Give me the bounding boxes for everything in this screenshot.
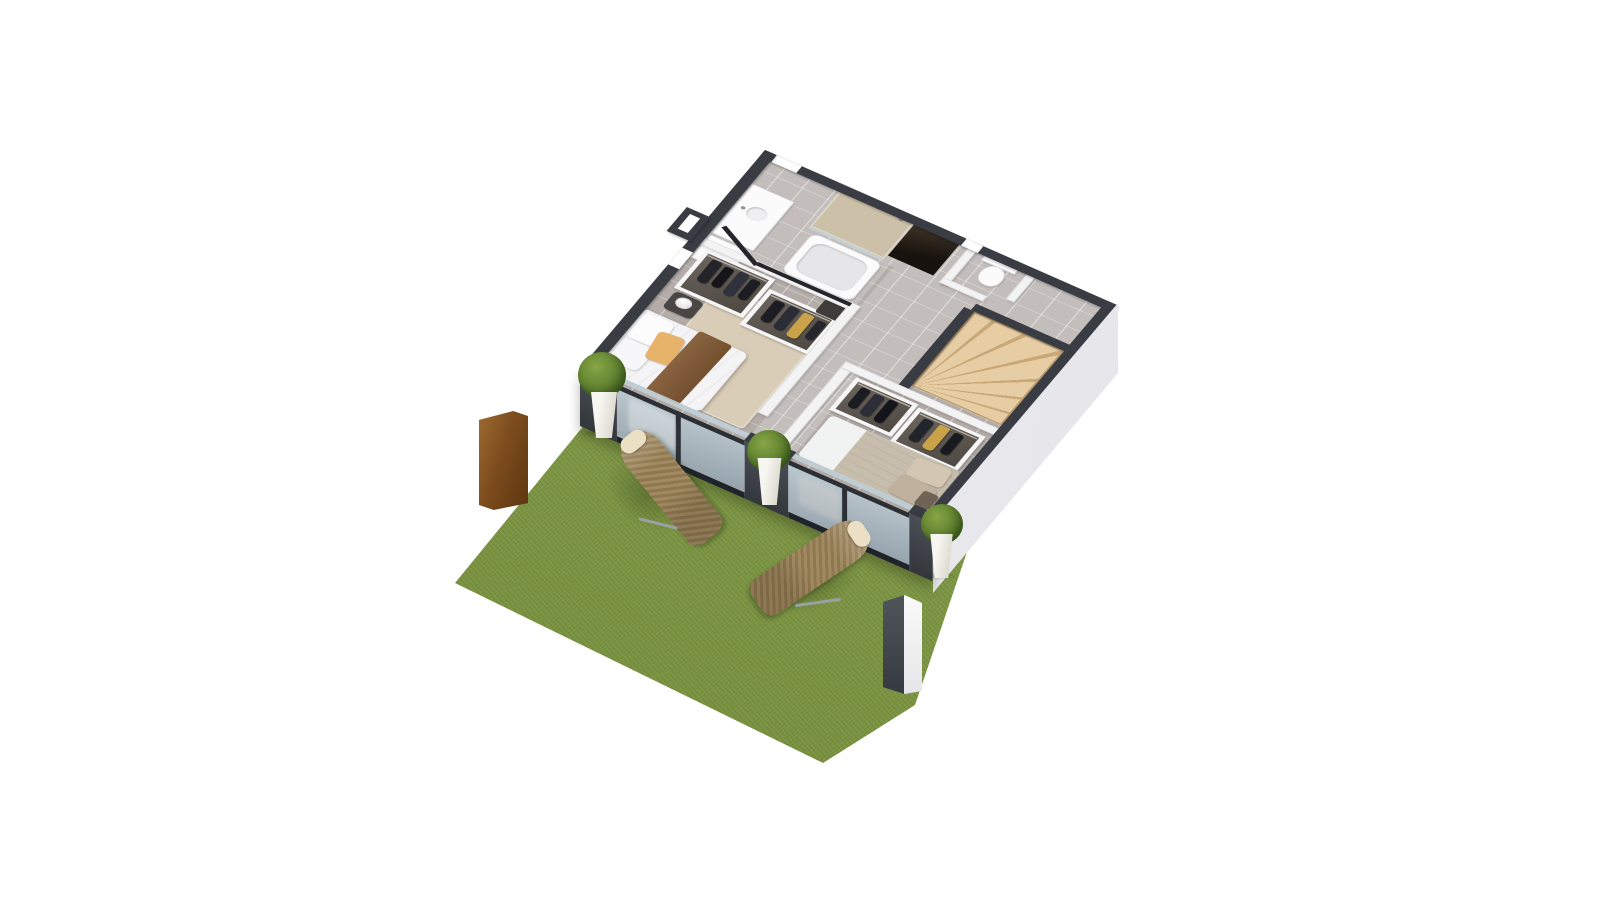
corten-steel-panel <box>479 411 528 510</box>
lounger-cushion <box>844 517 874 550</box>
pillar-dark-face <box>883 595 906 694</box>
boxwood-shrub-1 <box>578 352 626 398</box>
exterior-pillar <box>883 595 922 694</box>
pillar-white-face <box>904 595 922 694</box>
lounger-cushion <box>617 426 649 457</box>
floorplan-scene <box>0 0 1600 900</box>
chaise-lounger-2 <box>845 523 887 661</box>
sun-lounger-1 <box>607 429 649 567</box>
